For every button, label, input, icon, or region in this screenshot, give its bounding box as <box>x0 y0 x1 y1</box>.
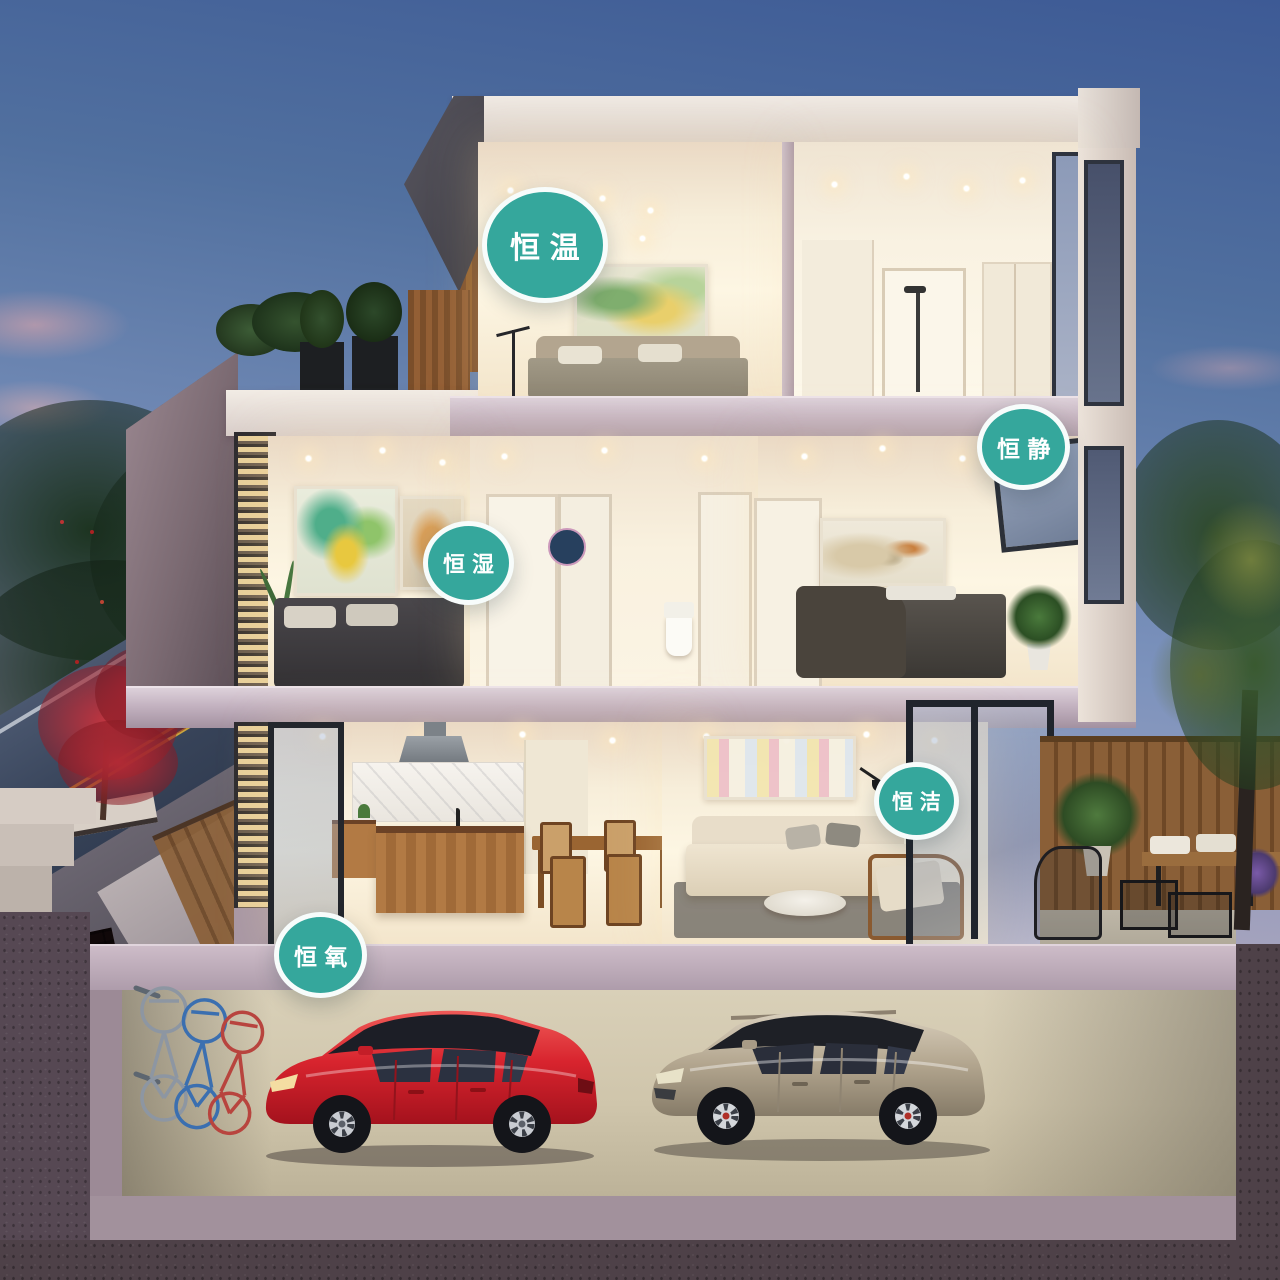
round-mirror <box>548 528 586 566</box>
room-3f-bathroom <box>794 142 1078 398</box>
shower-rail <box>916 292 920 392</box>
roof-parapet <box>452 96 1106 144</box>
gf-wall-base <box>234 908 268 946</box>
dining-chair <box>606 854 642 926</box>
wardrobe-seam <box>1014 264 1016 396</box>
badge-label: 恒洁 <box>892 786 947 816</box>
counter-plant <box>358 804 370 818</box>
sofa-cushion <box>785 824 822 851</box>
badge-constant-clean: 恒洁 <box>874 762 959 840</box>
bench-cushion <box>1150 836 1190 854</box>
badge-constant-humidity: 恒湿 <box>423 521 514 605</box>
roof-parapet-return <box>1078 88 1140 148</box>
badge-label: 恒静 <box>997 430 1058 464</box>
earth-right <box>1236 944 1280 1280</box>
coffee-table <box>764 890 846 916</box>
entry-step <box>0 866 52 912</box>
earth-bottom <box>0 1240 1280 1280</box>
badge-constant-temperature: 恒温 <box>482 187 608 303</box>
partition-3f <box>782 142 794 398</box>
wire-chair <box>1034 846 1102 940</box>
left-wing-facade <box>126 352 238 690</box>
glass-door-mullion <box>971 707 978 939</box>
toilet <box>666 612 692 656</box>
badge-label: 恒氧 <box>294 938 355 972</box>
beige-suv <box>636 986 1014 1168</box>
badge-label: 恒湿 <box>443 547 501 579</box>
garage-right-shade <box>982 990 1236 1198</box>
tree-red-berries <box>60 520 64 524</box>
bedroom-painting <box>820 518 946 586</box>
island-faucet <box>456 808 460 826</box>
kitchen-island <box>376 826 524 913</box>
bed <box>528 358 748 398</box>
toilet-tank <box>664 602 694 618</box>
terrace-planter-box <box>300 342 344 394</box>
right-wall-window <box>1084 446 1124 604</box>
entry-step <box>0 788 96 824</box>
bed-pillow <box>346 604 398 626</box>
terrace-wood-wall <box>408 290 470 396</box>
wardrobe <box>982 262 1052 402</box>
shower-head <box>904 286 926 293</box>
earth-left <box>0 912 90 1280</box>
bath-cabinet <box>802 240 874 398</box>
entry-step <box>0 824 74 866</box>
tree-canopy-right-warm <box>1150 620 1250 730</box>
hall-door <box>558 494 612 690</box>
badge-constant-oxygen: 恒氧 <box>274 912 367 998</box>
marble-backsplash <box>352 762 524 822</box>
bedroom-painting <box>294 486 398 596</box>
sofa-cushion <box>825 822 861 847</box>
badge-label: 恒温 <box>510 223 589 267</box>
bed-pillow <box>558 346 602 364</box>
range-hood-chimney <box>424 722 446 738</box>
living-painting <box>704 736 856 800</box>
terrace-tree-ball <box>346 282 402 342</box>
pink-cloud-right <box>1150 345 1280 391</box>
foundation-bottom <box>88 1196 1236 1242</box>
bed-pillow <box>638 344 682 362</box>
terrace-tree-cone <box>300 290 344 348</box>
badge-constant-quiet: 恒静 <box>977 404 1070 490</box>
terrace-slab <box>226 390 478 436</box>
dining-chair <box>550 856 586 928</box>
bench-cushion <box>1196 834 1236 852</box>
bed-pillow <box>284 606 336 628</box>
patio-side-table <box>1168 892 1232 938</box>
terrace-planter-box <box>352 336 398 394</box>
cutaway-home-render: 恒温 恒静 恒湿 恒洁 恒氧 <box>0 0 1280 1280</box>
bed-sheet <box>886 586 956 600</box>
pink-cloud-left <box>0 290 130 360</box>
red-car <box>246 990 614 1172</box>
plant-leaves <box>1006 584 1072 650</box>
wc-door <box>698 492 752 690</box>
floor-lamp <box>512 330 515 396</box>
right-wall-window <box>1084 160 1124 406</box>
